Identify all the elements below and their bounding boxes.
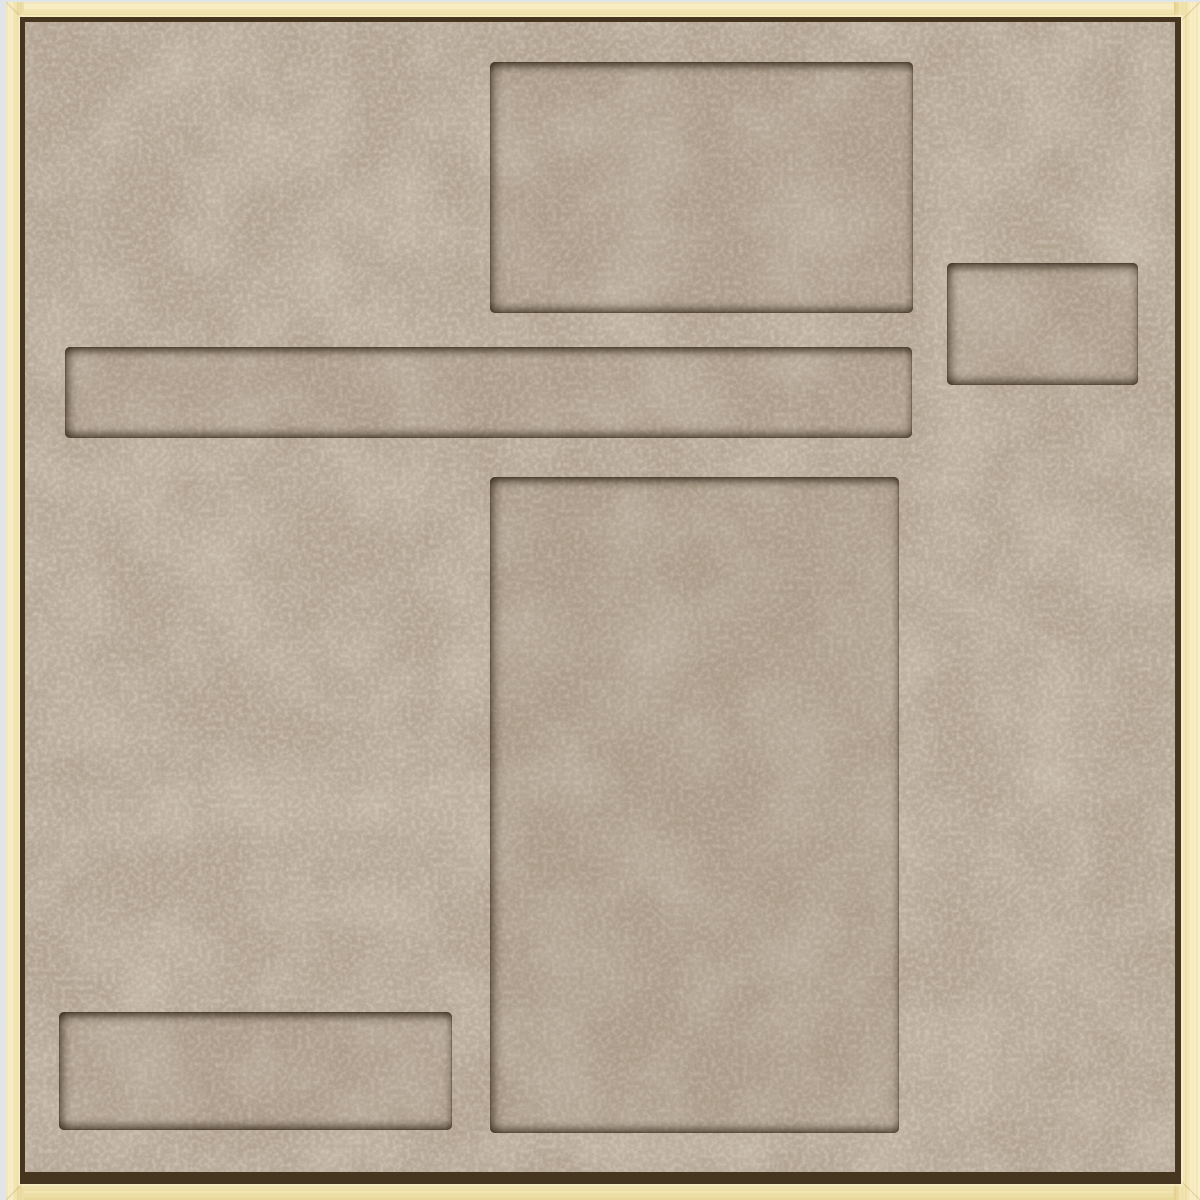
pocket-bottom-left <box>59 1012 452 1130</box>
pocket-horizontal-slot <box>65 347 912 438</box>
pocket-top-center <box>490 62 913 313</box>
framed-felt-tray-photo <box>0 0 1200 1200</box>
pocket-center-tall <box>490 477 899 1133</box>
felt-panel <box>25 22 1175 1172</box>
pocket-top-right <box>947 263 1138 385</box>
